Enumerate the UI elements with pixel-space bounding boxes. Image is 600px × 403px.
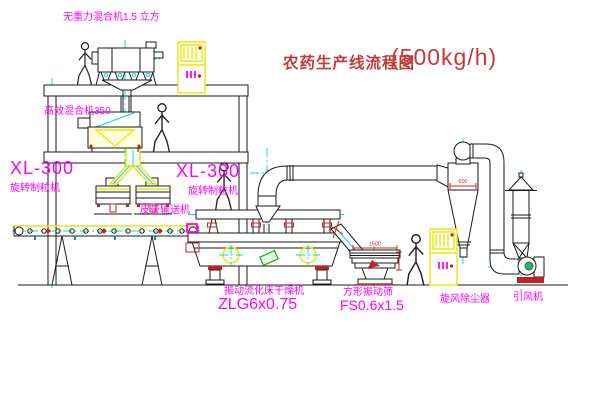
conveyor-leg-right <box>142 236 162 285</box>
worker-near-screen <box>407 235 424 285</box>
vibrating-screen: 1500 <box>350 242 402 286</box>
worker-top-floor <box>78 43 92 85</box>
control-cabinet-1 <box>178 42 205 93</box>
label-granulator-right-name: 旋转制粒机 <box>188 187 238 197</box>
label-high-eff-mixer: 高效混合机350 <box>44 107 111 117</box>
gravity-free-mixer <box>92 42 163 112</box>
label-dryer-model: ZLG6x0.75 <box>218 297 297 313</box>
induced-draft-fan <box>517 257 544 283</box>
diagram-capacity: (500kg/h) <box>391 44 497 71</box>
screen-dimension-text: 1500 <box>369 242 381 248</box>
exhaust-stack <box>505 173 537 258</box>
worker-second-floor <box>153 104 169 152</box>
cyclone-outlet-elbow <box>454 142 472 160</box>
control-cabinet-2 <box>430 229 457 285</box>
label-granulator-left-name: 旋转制粒机 <box>10 184 60 194</box>
cyclone-dimension-text: 600 <box>458 179 467 185</box>
label-belt-conveyor: 皮带输送机 <box>140 206 190 216</box>
label-screen-model: FS0.6x1.5 <box>340 298 404 312</box>
fan-base <box>517 277 544 283</box>
label-cyclone: 旋风除尘器 <box>440 295 490 305</box>
belt-conveyor <box>14 226 198 285</box>
high-efficiency-mixer <box>78 96 142 152</box>
cad-flow-diagram: 600 1500 <box>0 0 600 403</box>
dryer-feet <box>206 266 331 284</box>
label-granulator-left-model: XL-300 <box>10 159 74 177</box>
label-fan: 引风机 <box>513 293 543 303</box>
label-granulator-right-model: XL-300 <box>176 162 240 180</box>
stack-rain-cap <box>509 177 533 190</box>
label-gravity-mixer: 无重力混合机1.5 立方 <box>63 13 160 23</box>
